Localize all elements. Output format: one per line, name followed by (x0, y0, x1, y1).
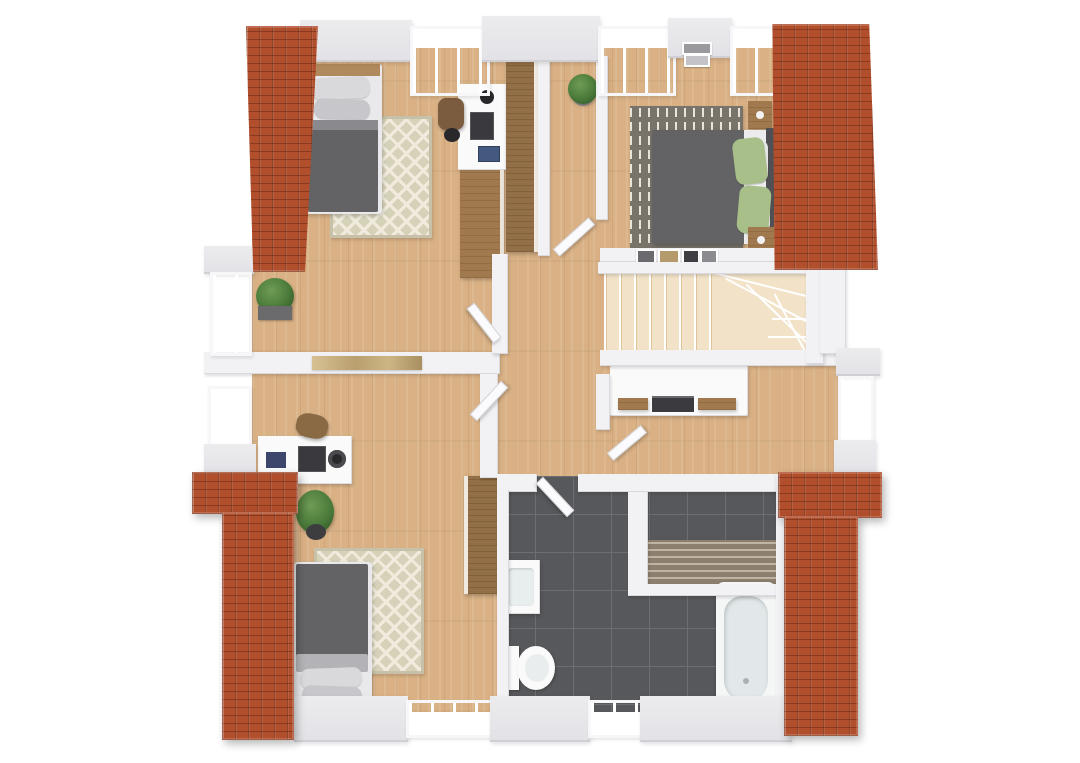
outer-wall-left (204, 246, 254, 274)
winder-tread-line (713, 272, 811, 298)
staircase (604, 274, 808, 352)
nightstand-item (757, 236, 765, 244)
pillow (311, 75, 370, 100)
green-pillow (731, 136, 768, 186)
roof-slope (222, 512, 294, 740)
sideboard-dressing-room (610, 366, 748, 416)
outer-wall-top (668, 18, 732, 58)
window-left (210, 272, 252, 356)
wall (596, 374, 610, 430)
outer-wall-top (482, 16, 600, 62)
roof-ridge-cap (778, 472, 882, 518)
picture-frame (684, 54, 710, 67)
wardrobe-top-left (506, 46, 538, 252)
accessory (266, 452, 286, 468)
window-bottom (588, 700, 648, 738)
roof-bottom-left (192, 472, 298, 740)
nightstand (748, 101, 772, 129)
roof-slope (784, 516, 858, 736)
basin (508, 568, 534, 606)
wall-artwork (312, 356, 422, 370)
planter-box (258, 306, 292, 320)
desk-top-left (458, 84, 508, 170)
office-chair (438, 98, 464, 130)
wall (628, 492, 648, 588)
drawer-front (618, 398, 648, 410)
bathtub (716, 582, 776, 710)
dormer-window-top (410, 26, 490, 96)
wardrobe-bottom-left (464, 476, 498, 594)
plant-pot (306, 524, 326, 540)
stair-tread-line (768, 336, 808, 338)
duvet (308, 120, 378, 212)
bowl-inner (525, 654, 549, 682)
monitor (470, 112, 494, 140)
toilet (503, 644, 555, 692)
winder-tread-line (774, 294, 809, 357)
outer-wall-bottom (640, 696, 792, 742)
tray (652, 396, 694, 412)
nightstand-item (756, 111, 764, 119)
outer-wall-bottom (294, 696, 408, 742)
duvet-fold (308, 120, 378, 130)
roof-ridge-cap (192, 472, 298, 514)
desk-lamp (328, 450, 346, 468)
dormer-window-top (730, 26, 778, 96)
wall (628, 584, 778, 596)
floor-plan-render (0, 0, 1080, 763)
headboard (306, 64, 380, 76)
roof-bottom-right (778, 472, 884, 738)
window-left (208, 386, 252, 452)
monitor (298, 446, 326, 472)
drawer-front (698, 398, 736, 410)
stair-tread-line (772, 318, 808, 320)
stair-winder (716, 274, 808, 352)
outer-wall-right (820, 266, 846, 354)
wall (497, 490, 509, 712)
outer-wall-bottom (490, 696, 590, 742)
tub-drain (743, 678, 749, 684)
chair-base (444, 128, 460, 142)
wall (538, 46, 550, 256)
duvet (296, 564, 368, 660)
window-bottom (406, 700, 496, 738)
window-right (838, 376, 874, 446)
roof-top-right (768, 24, 878, 270)
balcony-ledge-right (836, 348, 880, 376)
radiator-bench (648, 540, 778, 584)
tub-basin (724, 596, 768, 702)
hallway-plant (568, 74, 598, 104)
wall (578, 474, 790, 492)
bed-top-left (304, 64, 382, 214)
dormer-window-top (598, 26, 676, 96)
books (478, 146, 500, 162)
pillow (314, 98, 371, 120)
bed-bottom-left (294, 562, 372, 708)
